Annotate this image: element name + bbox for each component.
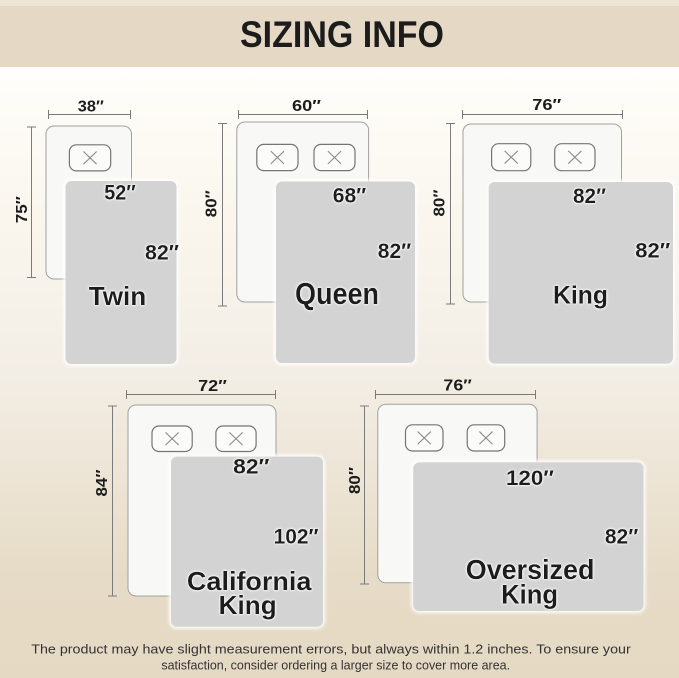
svg-text:82″: 82″ xyxy=(605,526,638,549)
svg-text:The product may have slight me: The product may have slight measurement … xyxy=(31,642,631,657)
svg-text:Twin: Twin xyxy=(89,281,147,311)
svg-text:38″: 38″ xyxy=(78,99,104,116)
svg-text:76″: 76″ xyxy=(532,97,561,114)
svg-text:60″: 60″ xyxy=(292,98,321,115)
svg-text:80″: 80″ xyxy=(204,190,221,217)
svg-text:King: King xyxy=(501,580,558,610)
svg-text:72″: 72″ xyxy=(198,378,227,395)
svg-text:King: King xyxy=(553,282,608,310)
svg-text:SIZING INFO: SIZING INFO xyxy=(240,14,444,55)
svg-text:King: King xyxy=(219,590,277,620)
svg-text:82″: 82″ xyxy=(145,242,179,265)
svg-text:76″: 76″ xyxy=(443,378,472,395)
svg-text:68″: 68″ xyxy=(333,185,367,208)
svg-text:80″: 80″ xyxy=(432,189,449,216)
svg-text:75″: 75″ xyxy=(14,196,31,223)
svg-text:satisfaction, consider orderin: satisfaction, consider ordering a larger… xyxy=(161,658,510,673)
svg-text:80″: 80″ xyxy=(347,467,364,494)
svg-text:102″: 102″ xyxy=(274,526,319,549)
svg-text:82″: 82″ xyxy=(573,185,606,208)
svg-text:120″: 120″ xyxy=(506,467,554,490)
svg-text:82″: 82″ xyxy=(378,240,412,263)
svg-text:Queen: Queen xyxy=(295,276,379,311)
svg-text:82″: 82″ xyxy=(635,240,670,263)
svg-text:52″: 52″ xyxy=(104,182,136,205)
svg-text:82″: 82″ xyxy=(233,456,269,479)
svg-text:84″: 84″ xyxy=(94,469,111,496)
